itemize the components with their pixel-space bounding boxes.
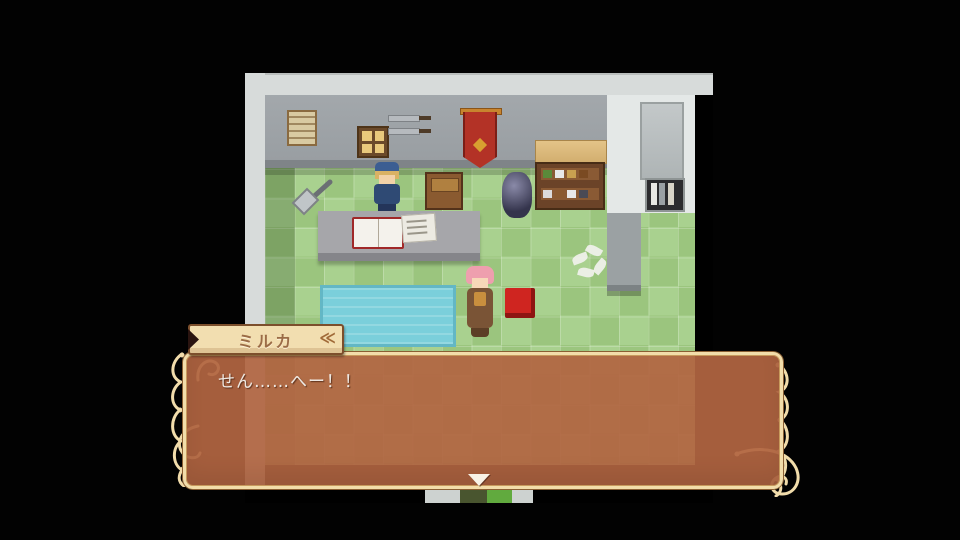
milka-character	[463, 266, 497, 342]
pillar-shadow	[607, 291, 641, 296]
ribbon-chevron-icon: ≪	[319, 328, 336, 347]
flower-petals-icon	[572, 246, 612, 282]
outer-wall-top	[245, 73, 713, 95]
screen: せん……へー！！ ミルカ ≪	[0, 0, 960, 540]
continue-indicator-icon[interactable]	[468, 474, 490, 486]
notice-board-icon	[287, 110, 317, 146]
wall-bookshelf	[645, 178, 685, 212]
item-shelf	[535, 140, 605, 210]
shopkeeper-npc	[372, 162, 402, 214]
shovel-icon	[290, 176, 336, 220]
wall-alcove	[640, 102, 684, 180]
milka-feet	[471, 328, 489, 337]
dialogue-box[interactable]: せん……へー！！	[183, 352, 783, 489]
red-box	[505, 288, 535, 318]
papers	[401, 213, 437, 243]
ribbon-fold-icon	[188, 329, 199, 350]
wall-window	[357, 126, 389, 158]
wall-pillar	[607, 213, 641, 291]
dialogue-text: せん……へー！！	[218, 367, 362, 392]
shelf-awning	[535, 140, 607, 164]
speaker-name-banner: ミルカ ≪	[188, 324, 344, 355]
supply-crate	[425, 172, 463, 210]
shelf-body	[535, 162, 605, 210]
milka-apron	[474, 292, 486, 306]
shopkeeper-face	[379, 175, 395, 184]
shopkeeper-legs	[378, 204, 396, 211]
red-wall-banner	[463, 108, 497, 168]
shopkeeper-body	[374, 184, 400, 204]
armor-statue	[502, 172, 532, 218]
milka-face	[472, 278, 488, 288]
open-book	[352, 217, 404, 249]
speaker-name: ミルカ	[238, 328, 295, 352]
mounted-swords-icon	[388, 114, 434, 140]
